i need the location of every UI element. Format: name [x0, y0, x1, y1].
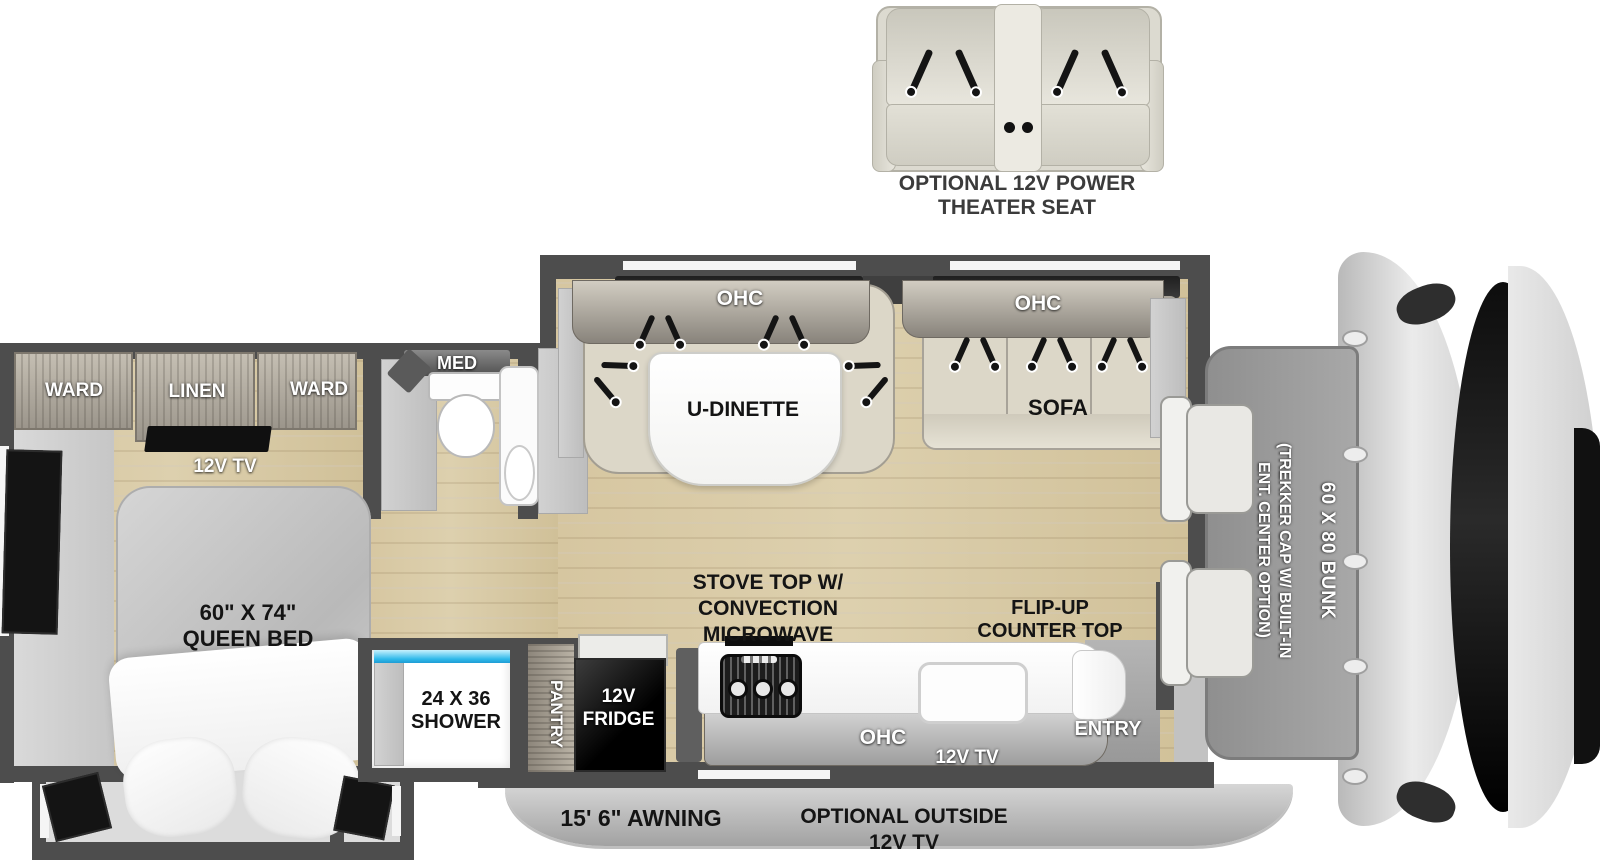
seat-marker-icon — [908, 48, 980, 100]
stove-burner-1 — [728, 679, 748, 699]
entry-label: ENTRY — [1068, 718, 1148, 740]
theater-seat-cushion-right — [1030, 104, 1150, 166]
bedroom-tv — [144, 426, 272, 452]
bunk-hinge — [1342, 553, 1368, 570]
cupholder-icon — [1004, 122, 1015, 133]
kitchen-sink-icon — [918, 662, 1028, 724]
shower-water-line — [374, 650, 510, 663]
shower-label: 24 X 36 SHOWER — [386, 688, 526, 734]
awning-label: 15' 6" AWNING — [541, 806, 741, 832]
flip-up-label: FLIP-UP COUNTER TOP — [960, 597, 1140, 643]
theater-seat-inset: OPTIONAL 12V POWER THEATER SEAT — [872, 4, 1162, 220]
outside-tv-label: OPTIONAL OUTSIDE 12V TV — [794, 804, 1014, 857]
sofa-label: SOFA — [1008, 396, 1108, 421]
sofa-slide-window — [950, 261, 1180, 270]
seat-marker-icon — [1096, 336, 1148, 374]
seat-marker-icon — [1026, 336, 1078, 374]
dinette-label: U-DINETTE — [653, 398, 833, 422]
theater-seat-cushion-left — [886, 104, 1006, 166]
flip-up-counter — [1072, 650, 1126, 720]
theater-seat-label: OPTIONAL 12V POWER THEATER SEAT — [857, 172, 1177, 220]
bunk-label: 60 X 80 BUNK — [1298, 428, 1338, 673]
stove-burner-3 — [778, 679, 798, 699]
seat-marker-icon — [1054, 48, 1126, 100]
theater-seat-console — [994, 4, 1042, 172]
bottom-wall-window — [698, 770, 830, 779]
fridge-label: 12V FRIDGE — [576, 686, 661, 732]
cupholder-icon — [1022, 122, 1033, 133]
front-grille — [1574, 428, 1600, 764]
stove-burner-2 — [753, 679, 773, 699]
bedroom-window — [2, 449, 63, 634]
seat-marker-icon — [949, 336, 1001, 374]
seat-marker-icon — [758, 314, 810, 352]
sofa-ohc-label: OHC — [1001, 292, 1075, 316]
bunk-hinge — [1342, 330, 1368, 347]
kitchen-tv-label: 12V TV — [927, 747, 1007, 768]
bunk-hinge — [1342, 768, 1368, 785]
pantry-label: PANTRY — [536, 664, 566, 764]
bed-slide-bottom-wall — [32, 842, 414, 860]
medicine-cabinet-label: MED — [428, 353, 486, 373]
linen-label: LINEN — [147, 381, 247, 402]
rv-floorplan: 15' 6" AWNING OPTIONAL OUTSIDE 12V TV WA… — [0, 0, 1600, 862]
stove-icon — [720, 654, 802, 718]
bed-slide-window-right — [333, 776, 395, 841]
stove-knobs — [741, 656, 777, 663]
dinette-slide-window — [623, 261, 856, 270]
dinette-ohc-label: OHC — [703, 287, 777, 311]
bedroom-tv-label: 12V TV — [185, 456, 265, 477]
toilet-bowl-icon — [437, 394, 495, 458]
kitchen-ohc-label: OHC — [848, 726, 918, 750]
trekker-cap-label: (TREKKER CAP W/ BUILT-IN ENT. CENTER OPT… — [1222, 378, 1294, 723]
bed-slide-window-right-sill — [392, 786, 401, 836]
stove-label: STOVE TOP W/ CONVECTION MICROWAVE — [658, 570, 878, 647]
bunk-hinge — [1342, 658, 1368, 675]
wardrobe-left-label: WARD — [24, 380, 124, 401]
wardrobe-right-label: WARD — [269, 379, 369, 400]
bunk-hinge — [1342, 446, 1368, 463]
bathroom-sink-icon — [504, 445, 535, 501]
seat-marker-icon — [634, 314, 686, 352]
queen-bed-label: 60" X 74" QUEEN BED — [138, 600, 358, 653]
